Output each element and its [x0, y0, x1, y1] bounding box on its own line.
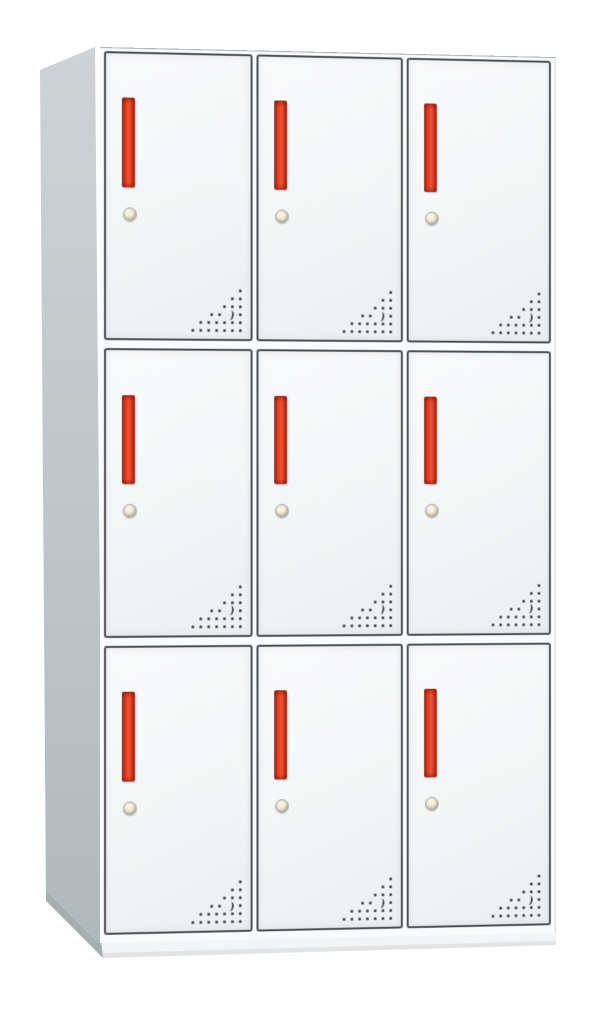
vent-dot: [389, 909, 392, 912]
vent-row: [223, 896, 242, 899]
vent-dot: [223, 896, 226, 899]
vent-dot: [530, 308, 533, 311]
vent-crescent-hole: [376, 311, 385, 322]
vent-dot: [231, 306, 234, 309]
vent-dot: [499, 907, 502, 910]
vent-dot: [538, 906, 541, 909]
vent-dot: [358, 323, 361, 326]
vent-dot: [215, 920, 218, 923]
vent-row: [191, 625, 241, 628]
vent-dot: [382, 917, 385, 920]
vent-dot: [507, 615, 510, 618]
vent-row: [350, 616, 392, 619]
vent-dot: [538, 875, 541, 878]
vent-dot: [382, 624, 385, 627]
vent-row: [210, 904, 242, 908]
vent-dot: [507, 324, 510, 327]
vent-row: [210, 313, 242, 316]
keyhole-lock-icon: [425, 797, 439, 811]
vent-dot: [530, 914, 533, 917]
vent-dot: [530, 615, 533, 618]
vent-dot: [499, 324, 502, 327]
vent-dot: [382, 893, 385, 896]
door-handle: [122, 98, 135, 188]
vent-dot: [207, 321, 210, 324]
vent-dot: [361, 902, 364, 905]
vent-dot: [522, 914, 525, 917]
vent-dot: [239, 888, 242, 891]
vent-crescent-hole: [376, 897, 385, 908]
vent-row: [492, 914, 541, 918]
vent-dot: [538, 623, 541, 626]
vent-dot: [374, 893, 377, 896]
vent-dot: [389, 901, 392, 904]
vent-dot: [223, 329, 226, 332]
vent-row: [199, 617, 241, 620]
vent-row: [492, 623, 541, 626]
vent-dot: [231, 617, 234, 620]
vent-dot: [239, 298, 242, 301]
vent-dot: [389, 299, 392, 302]
vent-dot: [218, 313, 221, 316]
vent-dot: [358, 917, 361, 920]
vent-dot: [530, 332, 533, 335]
vent-dot: [538, 332, 541, 335]
vent-row: [191, 329, 241, 332]
door-r3-c3: [407, 642, 551, 928]
vent-dot: [389, 315, 392, 318]
vent-dot: [538, 316, 541, 319]
vent-row: [510, 607, 541, 610]
vent-dot: [239, 329, 242, 332]
vent-row: [389, 877, 392, 880]
vent-dot: [538, 324, 541, 327]
door-r1-c2: [256, 54, 402, 342]
vent-dot: [366, 323, 369, 326]
vent-dot: [215, 913, 218, 916]
vent-dot: [239, 904, 242, 907]
vent-dot: [507, 914, 510, 917]
vent-dot: [389, 331, 392, 334]
vent-row: [530, 592, 541, 595]
vent-dot: [215, 617, 218, 620]
vent-dot: [366, 331, 369, 334]
door-handle: [274, 101, 287, 190]
vent-dot: [231, 298, 234, 301]
vent-dot: [199, 321, 202, 324]
vent-dot: [223, 625, 226, 628]
vent-dot: [239, 585, 242, 588]
vent-dot: [522, 599, 525, 602]
vent-dot: [538, 898, 541, 901]
vent-dot: [389, 584, 392, 587]
vent-dot: [515, 324, 518, 327]
vent-row: [382, 592, 393, 595]
vent-dot: [382, 909, 385, 912]
vent-dot: [210, 313, 213, 316]
vent-grid: [343, 584, 393, 627]
vent-dot: [538, 293, 541, 296]
vent-row: [389, 584, 392, 587]
vent-dot: [382, 600, 385, 603]
vent-dot: [522, 906, 525, 909]
vent-dot: [223, 617, 226, 620]
keyhole-lock-icon: [275, 799, 289, 813]
vent-row: [530, 301, 541, 304]
vent-crescent-hole: [225, 309, 234, 320]
vent-dot: [538, 914, 541, 917]
vent-dot: [530, 301, 533, 304]
vent-dot: [374, 331, 377, 334]
vent-dot: [231, 888, 234, 891]
vent-crescent-hole: [225, 605, 234, 616]
vent-dot: [231, 601, 234, 604]
vent-dot: [389, 600, 392, 603]
vent-row: [522, 308, 540, 311]
cabinet-front-face: [100, 47, 556, 943]
vent-dot: [366, 909, 369, 912]
door-r3-c2: [256, 643, 402, 931]
vent-dot: [361, 315, 364, 318]
vent-dot: [369, 315, 372, 318]
vent-dot: [538, 890, 541, 893]
vent-dot: [538, 592, 541, 595]
vent-dot: [350, 910, 353, 913]
vent-crescent-hole: [524, 894, 533, 905]
door-handle: [424, 689, 437, 778]
vent-dot: [239, 920, 242, 923]
vent-row: [374, 893, 392, 896]
vent-dot: [389, 893, 392, 896]
vent-dot: [389, 885, 392, 888]
vent-dot: [382, 616, 385, 619]
keyhole-lock-icon: [425, 504, 439, 518]
vent-dot: [389, 616, 392, 619]
vent-dot: [358, 624, 361, 627]
vent-dot: [239, 617, 242, 620]
vent-dot: [350, 322, 353, 325]
keyhole-lock-icon: [122, 801, 136, 815]
vent-dot: [538, 301, 541, 304]
vent-dot: [239, 306, 242, 309]
vent-row: [199, 912, 241, 916]
vent-row: [538, 875, 541, 878]
vent-dot: [492, 915, 495, 918]
vent-dot: [191, 625, 194, 628]
vent-dot: [522, 308, 525, 311]
vent-dot: [530, 324, 533, 327]
vent-dot: [239, 314, 242, 317]
vent-row: [499, 906, 540, 910]
vent-dot: [358, 330, 361, 333]
vent-dot: [538, 882, 541, 885]
vent-dot: [350, 918, 353, 921]
vent-crescent-hole: [225, 900, 234, 911]
vent-row: [231, 593, 242, 596]
vent-row: [350, 322, 392, 325]
vent-dot: [199, 913, 202, 916]
door-grid: [104, 51, 551, 935]
vent-dot: [343, 918, 346, 921]
vent-dot: [517, 316, 520, 319]
vent-row: [199, 321, 241, 324]
vent-dot: [191, 329, 194, 332]
vent-row: [374, 600, 392, 603]
vent-dot: [538, 615, 541, 618]
vent-dot: [223, 321, 226, 324]
vent-row: [223, 601, 242, 604]
vent-row: [499, 324, 540, 327]
vent-dot: [207, 913, 210, 916]
door-r2-c3: [407, 351, 551, 636]
vent-dot: [223, 305, 226, 308]
vent-dot: [350, 330, 353, 333]
vent-row: [343, 624, 393, 627]
vent-dot: [515, 332, 518, 335]
keyhole-lock-icon: [275, 504, 289, 518]
vent-dot: [538, 607, 541, 610]
vent-dot: [374, 323, 377, 326]
vent-dot: [218, 905, 221, 908]
vent-row: [350, 909, 392, 913]
vent-dot: [210, 905, 213, 908]
door-r1-c3: [407, 58, 551, 344]
vent-dot: [382, 323, 385, 326]
vent-dot: [207, 329, 210, 332]
vent-dot: [515, 615, 518, 618]
vent-row: [382, 299, 393, 302]
vent-dot: [522, 332, 525, 335]
vent-dot: [215, 625, 218, 628]
vent-dot: [350, 624, 353, 627]
vent-dot: [199, 921, 202, 924]
vent-dot: [215, 329, 218, 332]
vent-dot: [343, 330, 346, 333]
vent-dot: [538, 308, 541, 311]
vent-dot: [389, 608, 392, 611]
vent-dot: [517, 898, 520, 901]
vent-dot: [239, 625, 242, 628]
vent-grid: [191, 880, 241, 924]
vent-dot: [199, 625, 202, 628]
vent-grid: [492, 584, 541, 626]
vent-dot: [239, 609, 242, 612]
vent-row: [343, 917, 393, 921]
vent-crescent-hole: [524, 312, 533, 323]
keyhole-lock-icon: [122, 207, 136, 221]
door-handle: [274, 690, 287, 779]
vent-row: [492, 332, 541, 335]
vent-dot: [492, 623, 495, 626]
vent-dot: [231, 329, 234, 332]
vent-dot: [389, 323, 392, 326]
vent-dot: [231, 912, 234, 915]
vent-dot: [530, 623, 533, 626]
vent-grid: [191, 289, 241, 332]
vent-row: [210, 609, 242, 612]
vent-row: [231, 298, 242, 301]
vent-dot: [530, 599, 533, 602]
vent-row: [510, 898, 541, 902]
vent-dot: [239, 601, 242, 604]
vent-row: [538, 584, 541, 587]
vent-dot: [239, 896, 242, 899]
vent-dot: [199, 617, 202, 620]
vent-dot: [369, 608, 372, 611]
vent-grid: [492, 292, 541, 335]
vent-dot: [207, 625, 210, 628]
vent-row: [191, 920, 241, 924]
vent-dot: [530, 890, 533, 893]
vent-dot: [515, 914, 518, 917]
door-handle: [122, 692, 135, 782]
vent-dot: [239, 322, 242, 325]
vent-dot: [382, 299, 385, 302]
door-handle: [274, 395, 287, 484]
vent-row: [499, 615, 540, 618]
vent-dot: [374, 307, 377, 310]
vent-row: [239, 290, 242, 293]
vent-dot: [382, 307, 385, 310]
vent-dot: [239, 912, 242, 915]
door-r3-c1: [104, 645, 253, 935]
vent-dot: [374, 909, 377, 912]
vent-dot: [207, 921, 210, 924]
vent-dot: [210, 609, 213, 612]
vent-dot: [522, 324, 525, 327]
vent-dot: [517, 607, 520, 610]
vent-dot: [223, 920, 226, 923]
cabinet-side-panel: [40, 47, 103, 958]
vent-dot: [231, 896, 234, 899]
vent-dot: [239, 593, 242, 596]
vent-grid: [343, 291, 393, 334]
vent-row: [239, 880, 242, 883]
door-handle: [424, 104, 437, 193]
vent-dot: [515, 623, 518, 626]
vent-row: [361, 901, 392, 905]
vent-dot: [231, 625, 234, 628]
vent-dot: [389, 624, 392, 627]
vent-row: [343, 330, 393, 333]
vent-dot: [389, 877, 392, 880]
vent-dot: [239, 880, 242, 883]
vent-dot: [510, 899, 513, 902]
vent-dot: [530, 592, 533, 595]
vent-row: [389, 291, 392, 294]
product-photo: [0, 0, 605, 1009]
vent-dot: [361, 608, 364, 611]
vent-dot: [507, 623, 510, 626]
vent-row: [361, 315, 392, 318]
vent-dot: [374, 600, 377, 603]
vent-dot: [530, 906, 533, 909]
door-r1-c1: [104, 51, 253, 341]
vent-dot: [223, 601, 226, 604]
vent-dot: [538, 599, 541, 602]
vent-row: [361, 608, 392, 611]
vent-dot: [191, 921, 194, 924]
vent-row: [223, 305, 242, 308]
door-handle: [122, 395, 135, 485]
vent-row: [522, 890, 540, 893]
vent-dot: [522, 890, 525, 893]
vent-dot: [366, 624, 369, 627]
vent-dot: [510, 316, 513, 319]
vent-row: [538, 293, 541, 296]
vent-dot: [215, 321, 218, 324]
vent-dot: [239, 290, 242, 293]
vent-dot: [374, 624, 377, 627]
vent-dot: [499, 332, 502, 335]
vent-grid: [492, 875, 541, 918]
vent-dot: [223, 912, 226, 915]
vent-grid: [343, 877, 393, 920]
vent-dot: [530, 883, 533, 886]
vent-dot: [389, 592, 392, 595]
vent-dot: [231, 321, 234, 324]
vent-dot: [358, 910, 361, 913]
vent-dot: [507, 332, 510, 335]
vent-dot: [218, 609, 221, 612]
vent-dot: [358, 616, 361, 619]
vent-dot: [231, 593, 234, 596]
vent-dot: [499, 623, 502, 626]
vent-dot: [350, 616, 353, 619]
vent-dot: [510, 607, 513, 610]
door-r2-c1: [104, 348, 253, 637]
vent-row: [522, 599, 540, 602]
vent-dot: [382, 885, 385, 888]
vent-row: [530, 882, 541, 885]
vent-dot: [389, 917, 392, 920]
vent-row: [374, 307, 392, 310]
keyhole-lock-icon: [425, 212, 439, 226]
vent-dot: [522, 623, 525, 626]
vent-dot: [382, 592, 385, 595]
vent-row: [239, 585, 242, 588]
vent-dot: [389, 307, 392, 310]
vent-dot: [374, 616, 377, 619]
vent-dot: [207, 617, 210, 620]
vent-dot: [507, 906, 510, 909]
vent-dot: [499, 615, 502, 618]
vent-dot: [366, 616, 369, 619]
vent-dot: [374, 917, 377, 920]
vent-dot: [522, 615, 525, 618]
vent-dot: [366, 917, 369, 920]
keyhole-lock-icon: [122, 504, 136, 518]
keyhole-lock-icon: [275, 210, 289, 224]
vent-dot: [231, 920, 234, 923]
vent-grid: [191, 585, 241, 628]
door-r2-c2: [256, 349, 402, 636]
vent-dot: [515, 906, 518, 909]
door-handle: [424, 396, 437, 484]
vent-dot: [369, 901, 372, 904]
vent-crescent-hole: [524, 603, 533, 614]
vent-dot: [343, 624, 346, 627]
vent-dot: [492, 332, 495, 335]
vent-row: [510, 316, 541, 319]
vent-dot: [538, 584, 541, 587]
vent-row: [231, 888, 242, 891]
vent-dot: [382, 331, 385, 334]
vent-row: [382, 885, 393, 888]
vent-dot: [499, 914, 502, 917]
vent-dot: [389, 291, 392, 294]
vent-crescent-hole: [376, 604, 385, 615]
